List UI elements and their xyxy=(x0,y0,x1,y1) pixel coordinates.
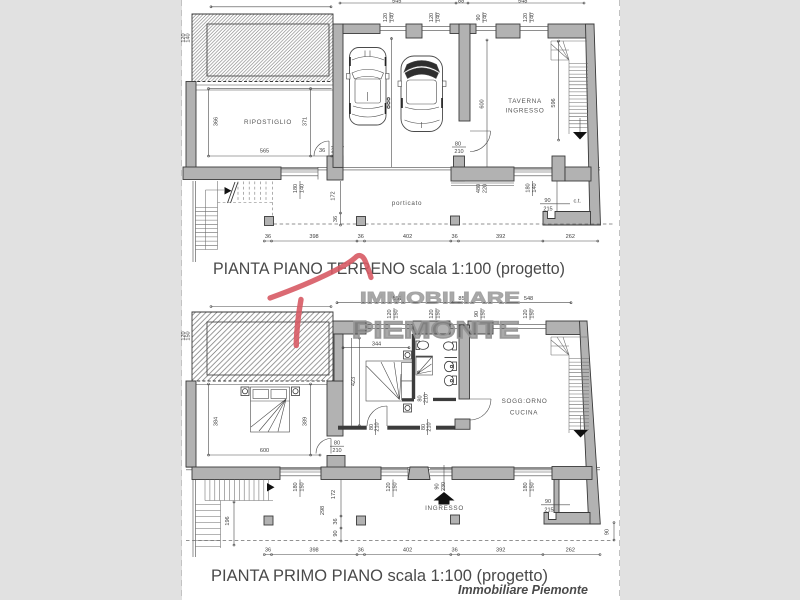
svg-text:600: 600 xyxy=(260,448,269,454)
svg-text:INGRESSO: INGRESSO xyxy=(506,108,545,115)
svg-text:SOGG:ORNO: SOGG:ORNO xyxy=(502,398,548,405)
svg-text:180: 180 xyxy=(293,184,299,193)
svg-text:Immobiliare Piemonte: Immobiliare Piemonte xyxy=(458,583,588,597)
svg-text:210: 210 xyxy=(375,422,381,431)
svg-text:371: 371 xyxy=(303,117,309,126)
svg-text:80: 80 xyxy=(455,142,461,148)
svg-text:36: 36 xyxy=(451,234,457,240)
svg-text:172: 172 xyxy=(331,490,337,499)
svg-text:210: 210 xyxy=(332,448,341,454)
svg-text:150: 150 xyxy=(300,482,306,491)
svg-text:90: 90 xyxy=(435,483,441,489)
svg-text:90: 90 xyxy=(476,14,482,20)
svg-text:480: 480 xyxy=(476,184,482,193)
svg-text:porticato: porticato xyxy=(392,200,422,207)
svg-text:215: 215 xyxy=(544,508,553,514)
svg-text:548: 548 xyxy=(518,0,527,5)
svg-text:120: 120 xyxy=(386,482,392,491)
svg-text:36: 36 xyxy=(265,548,271,554)
svg-text:172: 172 xyxy=(331,191,337,200)
svg-text:398: 398 xyxy=(309,234,318,240)
svg-text:150: 150 xyxy=(186,331,192,340)
svg-text:150: 150 xyxy=(530,482,536,491)
svg-text:120: 120 xyxy=(429,13,435,22)
svg-text:402: 402 xyxy=(403,548,412,554)
svg-text:c.t.: c.t. xyxy=(574,199,582,205)
svg-text:120: 120 xyxy=(523,309,529,318)
svg-text:PIANTA PIANO TERRENO scala 1:1: PIANTA PIANO TERRENO scala 1:100 (proget… xyxy=(213,260,565,278)
svg-text:CUCINA: CUCINA xyxy=(510,410,538,417)
svg-text:120: 120 xyxy=(523,13,529,22)
svg-text:180: 180 xyxy=(523,482,529,491)
svg-text:402: 402 xyxy=(403,234,412,240)
svg-text:90: 90 xyxy=(544,198,550,204)
svg-text:36: 36 xyxy=(319,148,325,154)
svg-text:PIEMONTE: PIEMONTE xyxy=(352,317,520,344)
svg-text:180: 180 xyxy=(526,183,532,192)
svg-text:36: 36 xyxy=(358,234,364,240)
svg-text:262: 262 xyxy=(566,548,575,554)
svg-text:150: 150 xyxy=(530,309,536,318)
svg-text:389: 389 xyxy=(303,417,309,426)
svg-text:36: 36 xyxy=(451,548,457,554)
svg-text:262: 262 xyxy=(566,234,575,240)
svg-text:596: 596 xyxy=(551,98,557,107)
svg-text:IMMOBILIARE: IMMOBILIARE xyxy=(360,290,520,308)
svg-text:392: 392 xyxy=(496,548,505,554)
svg-text:140: 140 xyxy=(186,33,192,42)
svg-text:298: 298 xyxy=(320,506,326,515)
svg-text:36: 36 xyxy=(333,518,339,524)
svg-text:36: 36 xyxy=(358,548,364,554)
svg-text:120: 120 xyxy=(383,13,389,22)
svg-text:180: 180 xyxy=(293,482,299,491)
svg-text:INGRESSO: INGRESSO xyxy=(425,505,464,512)
svg-text:90: 90 xyxy=(605,529,611,535)
svg-text:196: 196 xyxy=(225,516,231,525)
svg-text:545: 545 xyxy=(392,0,401,5)
svg-text:140: 140 xyxy=(530,13,536,22)
svg-text:565: 565 xyxy=(260,149,269,155)
svg-text:140: 140 xyxy=(300,184,306,193)
svg-text:90: 90 xyxy=(333,530,339,536)
svg-text:548: 548 xyxy=(524,296,533,302)
svg-text:384: 384 xyxy=(214,417,220,426)
svg-text:600: 600 xyxy=(480,99,486,108)
svg-text:88: 88 xyxy=(458,0,464,5)
svg-text:140: 140 xyxy=(436,13,442,22)
svg-text:36: 36 xyxy=(333,216,339,222)
svg-text:140: 140 xyxy=(532,183,538,192)
svg-text:230: 230 xyxy=(441,482,447,491)
svg-text:210: 210 xyxy=(454,149,463,155)
svg-text:423: 423 xyxy=(351,377,357,386)
svg-text:398: 398 xyxy=(309,548,318,554)
svg-text:140: 140 xyxy=(483,13,489,22)
svg-text:366: 366 xyxy=(214,117,220,126)
svg-text:36: 36 xyxy=(265,234,271,240)
svg-text:90: 90 xyxy=(545,499,551,505)
svg-text:210: 210 xyxy=(427,422,433,431)
svg-text:TAVERNA: TAVERNA xyxy=(508,98,542,105)
svg-text:RIPOSTIGLIO: RIPOSTIGLIO xyxy=(244,119,292,126)
svg-text:392: 392 xyxy=(496,234,505,240)
svg-text:80: 80 xyxy=(334,441,340,447)
svg-text:220: 220 xyxy=(483,184,489,193)
svg-text:150: 150 xyxy=(393,482,399,491)
svg-text:140: 140 xyxy=(390,13,396,22)
